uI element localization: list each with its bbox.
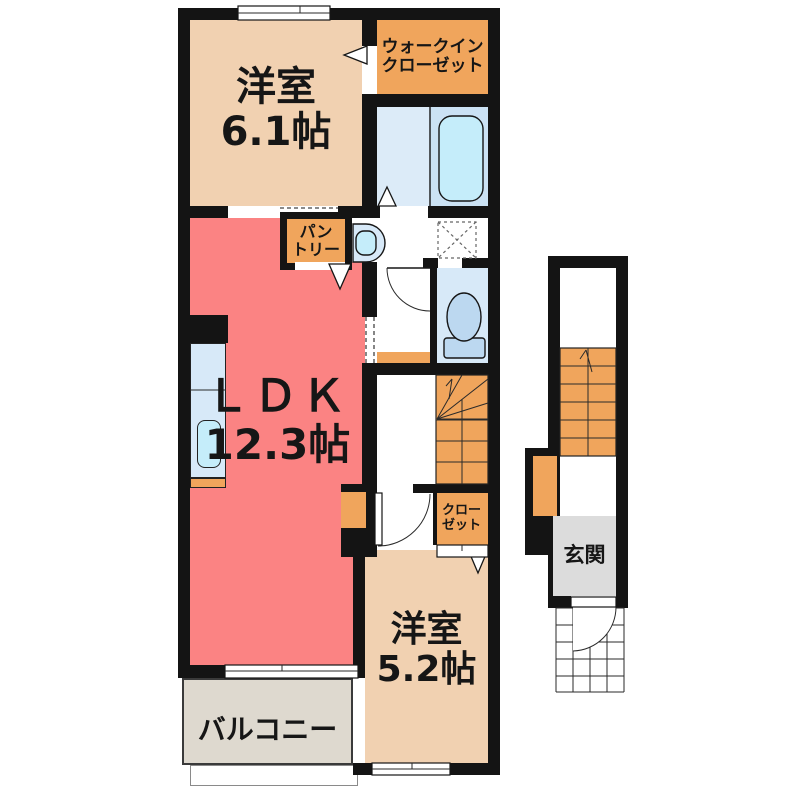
ldk-hall-opening: [366, 317, 374, 363]
wall-segment: [178, 8, 500, 20]
hallway: [377, 262, 433, 363]
room-name: トリー: [292, 241, 340, 259]
wall-segment: [178, 8, 190, 678]
toilet-room: [437, 268, 488, 363]
wall-segment: [353, 557, 365, 678]
interior-stairs: [436, 375, 488, 484]
label-western2: 洋室 5.2帖: [365, 585, 488, 715]
room-size: 6.1帖: [221, 110, 332, 155]
entrance-stairs: [560, 348, 616, 456]
entrance-door-gap: [571, 596, 616, 608]
balcony-railing: [190, 765, 358, 786]
room-name: 洋室: [236, 65, 316, 110]
wall-segment: [178, 665, 365, 678]
wall-segment: [362, 363, 500, 375]
bathroom-washplace: [377, 107, 430, 206]
wall-segment: [353, 763, 500, 775]
room-name: クロー: [442, 504, 481, 519]
room-name: 洋室: [390, 610, 462, 650]
room-size: 5.2帖: [377, 650, 477, 690]
room-size: 12.3帖: [205, 421, 351, 468]
wall-segment: [362, 8, 377, 46]
wall-segment: [430, 262, 437, 363]
label-entrance: 玄関: [553, 538, 616, 574]
room-name: ＬＤＫ: [206, 372, 350, 421]
wall-segment: [413, 484, 500, 493]
wall-segment: [377, 94, 488, 107]
toilet-door-gap: [438, 258, 462, 268]
room-name: 玄関: [564, 544, 606, 568]
shoe-cabinet: [533, 456, 557, 516]
label-walk-in-closet: ウォークイン クローゼット: [377, 24, 488, 90]
room-name: パン: [300, 223, 333, 241]
label-western1: 洋室 6.1帖: [190, 40, 362, 180]
room-name: ゼット: [442, 519, 481, 534]
western2-door-zone: [377, 493, 433, 550]
label-ldk: ＬＤＫ 12.3帖: [190, 345, 365, 495]
stair-landing-pocket: [377, 375, 436, 493]
label-pantry: パン トリー: [283, 217, 349, 265]
bathroom-tub-zone: [430, 107, 488, 206]
understairs-niche: [341, 492, 366, 528]
room-name: ウォークイン: [382, 38, 484, 57]
label-balcony: バルコニー: [182, 705, 353, 755]
wall-segment: [488, 8, 500, 775]
floor-plan: 洋室 6.1帖 ウォークイン クローゼット ＬＤＫ 12.3帖 パン トリー ク…: [0, 0, 800, 800]
wall-segment: [428, 206, 500, 218]
wall-segment: [178, 206, 228, 218]
label-closet: クロー ゼット: [435, 495, 488, 543]
washroom: [352, 218, 488, 262]
porch-grid: [556, 608, 624, 692]
wall-segment: [178, 315, 228, 343]
room-name: バルコニー: [198, 714, 337, 745]
room-name: クローゼット: [382, 57, 484, 76]
wall-segment: [362, 94, 377, 218]
wall-segment: [362, 262, 377, 317]
hallway-floor-strip: [377, 352, 430, 363]
